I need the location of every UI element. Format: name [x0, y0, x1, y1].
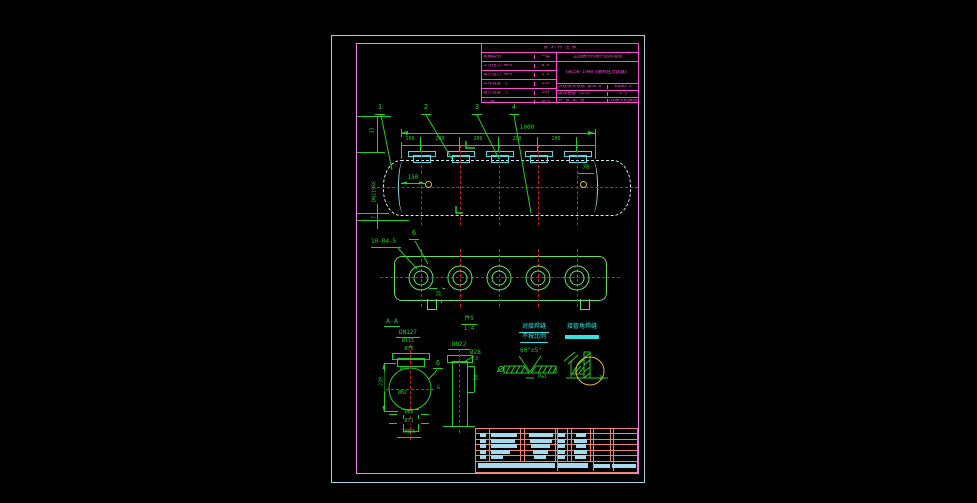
aa-dim-d71: Ø71 [399, 419, 419, 424]
table-text-block [558, 463, 588, 468]
spec-label: 工作压力 MPa [482, 64, 535, 69]
balloon-underline [421, 114, 431, 115]
radius-callout: 10-R4.5 [371, 239, 396, 245]
balloon-2: 2 [421, 104, 431, 111]
pipe-spec-label: DN219X6 [373, 168, 378, 216]
part5-base-line [443, 426, 475, 427]
dim-line [421, 414, 429, 415]
drawing-number: DQG6-5 [608, 85, 638, 90]
balloon-3: 3 [472, 104, 482, 111]
extension-line [357, 152, 385, 153]
dim-150: 150 [402, 175, 424, 181]
table-text-block [529, 433, 553, 437]
nozzle-flange-neck [530, 155, 548, 163]
extension-line [384, 363, 396, 364]
butt-weld-subtitle: 不按比例 [520, 334, 548, 340]
table-text-block [480, 433, 486, 437]
nozzle-centerline [577, 145, 578, 225]
balloon-underline [472, 114, 482, 115]
table-text-block [480, 455, 486, 459]
spec-value: 一类 [535, 55, 556, 60]
spec-value: 191 [535, 91, 556, 96]
balloon-4: 4 [509, 104, 519, 111]
nozzle-centerline [538, 145, 539, 225]
title-block-right-table: 全国通用机械产品标准图 GB150-1998《钢制压力容器》 焊接接头系数 φ=… [557, 53, 638, 102]
table-text-block [574, 450, 587, 454]
extension-line [357, 220, 409, 221]
table-text-block [491, 455, 503, 459]
drawing-scale: 1:4 [608, 92, 638, 97]
dim-chain: 200 [507, 137, 527, 142]
opening-centerline [538, 249, 539, 307]
title-block-header-row: 技 术 特 性 表 [482, 44, 638, 53]
nozzle-flange-neck [569, 155, 587, 163]
shell-plan-outline [394, 256, 607, 301]
cad-drawing-canvas: 技 术 特 性 表 容器类别一类 工作压力 MPa0.4 设计压力 MPa1.2… [0, 0, 977, 503]
spec-label: 设计压力 MPa [482, 73, 535, 78]
table-text-block [480, 444, 486, 448]
standard-org: 全国通用机械产品标准图 [557, 55, 638, 60]
dim-line-150 [401, 183, 425, 184]
extension-line [498, 137, 499, 152]
opening-centerline [499, 249, 500, 307]
balloon-6: 6 [433, 360, 443, 367]
fillet-weld-title: 接管角焊缝 [563, 324, 601, 330]
nozzle-flange-neck [413, 155, 431, 163]
title-block-left-table: 容器类别一类 工作压力 MPa0.4 设计压力 MPa1.2 工作温度 ℃151… [482, 53, 557, 102]
radius-callout-underline [371, 247, 401, 248]
aa-inner-d62: Ø62 [398, 391, 407, 396]
table-text-block [576, 444, 586, 448]
table-text-block [480, 439, 486, 443]
spec-value: 1.2 [535, 73, 556, 78]
aa-centerline-h [386, 389, 434, 390]
spec-value: 蒸汽 [535, 100, 556, 105]
plan-centerline [380, 277, 620, 278]
extension-line [468, 366, 474, 367]
table-text-block [594, 464, 610, 468]
table-text-block [558, 455, 565, 459]
sheet-info: 共 张 第 张 [557, 99, 608, 104]
part5-dn22-label: DN22 [448, 342, 470, 348]
dim-tab: 35 [438, 288, 443, 300]
dim-overall: 1000 [512, 125, 542, 131]
balloon-underline [509, 114, 519, 115]
extension-line [420, 137, 421, 152]
butt-weld-title: 对接焊缝 [519, 324, 549, 330]
table-text-block [491, 444, 517, 448]
aa-dim-d68: Ø68 [399, 410, 419, 415]
spec-label: 容器类别 [482, 55, 535, 60]
nozzle-flange-neck [491, 155, 509, 163]
table-text-block [530, 439, 552, 443]
aa-dn83-underline [397, 437, 421, 438]
table-text-block [491, 433, 517, 437]
table-text-block [531, 444, 550, 448]
table-text-block [558, 444, 565, 448]
dim-line [389, 423, 397, 424]
opening-centerline [460, 249, 461, 307]
dim-70-underline [578, 173, 594, 174]
fillet-weld-title-bar [565, 335, 599, 339]
weld-marker [425, 181, 432, 188]
opening-centerline [421, 249, 422, 307]
extension-line [576, 137, 577, 152]
nozzle-centerline [460, 145, 461, 225]
table-text-block [534, 455, 546, 459]
dim-line-33 [377, 116, 378, 153]
dim-33: 33 [371, 122, 376, 140]
table-line [590, 428, 591, 462]
dim-7: 7 [373, 212, 378, 224]
overall-dim-line [401, 133, 595, 134]
extension-line [537, 137, 538, 152]
table-line [571, 428, 572, 462]
title-block-body: 容器类别一类 工作压力 MPa0.4 设计压力 MPa1.2 工作温度 ℃151… [482, 53, 638, 102]
aa-dim-d115: Ø115 [398, 339, 418, 344]
spec-value: 151 [535, 82, 556, 87]
aa-side-mark: G [437, 386, 440, 391]
dim-70: 70 [578, 165, 594, 171]
spec-label: 工作温度 ℃ [482, 82, 535, 87]
table-line [610, 428, 611, 462]
extension-line [595, 129, 596, 159]
table-text-block [558, 433, 565, 437]
spec-label: 设计温度 ℃ [482, 91, 535, 96]
table-line [489, 428, 490, 462]
part5-dim-3: 3 [475, 357, 478, 362]
spec-value: 0.4 [535, 64, 556, 69]
part5-stem [452, 361, 468, 427]
drain-stub [580, 299, 590, 310]
table-text-block [558, 439, 565, 443]
aa-inner-d75: Ø75 [400, 367, 409, 372]
drain-stub [427, 299, 437, 310]
dim-chain: 200 [430, 137, 450, 142]
aa-dim-d75: Ø75 [401, 347, 417, 352]
balloon-underline [433, 368, 443, 369]
title-block-header: 技 术 特 性 表 [482, 46, 638, 51]
dim-line [421, 423, 429, 424]
extension-line [468, 392, 474, 393]
table-text-block [574, 439, 587, 443]
table-line [567, 428, 568, 462]
table-text-block [575, 455, 586, 459]
sheet-format: A3通用机械图 [608, 99, 638, 104]
nozzle-centerline [421, 145, 422, 225]
table-text-block [576, 433, 586, 437]
design-standard: GB150-1998《钢制压力容器》 [557, 70, 638, 76]
dim-chain: 100 [400, 137, 420, 142]
part5-title: 件5 [461, 316, 477, 322]
nozzle-centerline [499, 145, 500, 225]
dim-chain: 200 [468, 137, 488, 142]
table-text-block [612, 464, 636, 468]
part5-dim-50: 50 [475, 371, 480, 385]
balloon-underline [375, 114, 385, 115]
table-text-block [480, 450, 486, 454]
dim-line [389, 414, 397, 415]
dim-chain: 200 [546, 137, 566, 142]
butt-weld-gap: P±1 [538, 375, 547, 380]
extension-line [357, 116, 391, 117]
butt-weld-subtitle-underline [520, 342, 548, 343]
balloon-underline [409, 239, 419, 240]
nozzle-flange-neck [452, 155, 470, 163]
part5-scale: 1:4 [461, 326, 477, 332]
corrosion-allowance: 腐蚀裕量 C2=1 [557, 92, 608, 97]
butt-weld-angle: 60°±5° [517, 348, 545, 354]
table-line [520, 428, 521, 462]
balloon-1: 1 [375, 104, 385, 111]
section-title: A-A [384, 318, 400, 325]
aa-dim-239: 239 [380, 372, 385, 392]
aa-flange-label: DN127 [396, 330, 420, 336]
aa-dn83-label: DN83 [397, 430, 421, 435]
opening-centerline [577, 249, 578, 307]
table-text-block [533, 450, 548, 454]
table-line [524, 428, 525, 462]
table-text-block [491, 439, 515, 443]
extension-line [459, 137, 460, 152]
weld-marker [580, 181, 587, 188]
weld-factor: 焊接接头系数 φ=0.8 [557, 85, 608, 90]
extension-line [384, 411, 398, 412]
table-text-block [491, 450, 510, 454]
main-centerline [372, 187, 638, 188]
table-line [555, 428, 556, 462]
title-block: 技 术 特 性 表 容器类别一类 工作压力 MPa0.4 设计压力 MPa1.2… [481, 43, 639, 103]
fillet-weld-mark: 3 [599, 376, 602, 381]
table-text-block [558, 450, 565, 454]
section-title-underline [384, 326, 400, 327]
table-text-block [478, 463, 555, 468]
part5-centerline [459, 349, 460, 433]
balloon-6: 6 [409, 230, 419, 237]
